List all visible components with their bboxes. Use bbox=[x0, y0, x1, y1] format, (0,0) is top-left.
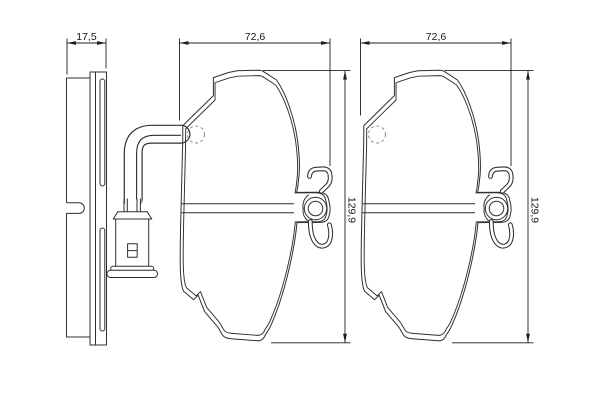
brake-pad-right bbox=[361, 70, 511, 341]
backplate-slot-lower bbox=[100, 228, 105, 331]
connector-top-flange bbox=[113, 212, 152, 219]
backplate-profile bbox=[90, 72, 107, 345]
friction-material-profile bbox=[67, 78, 91, 337]
dimension-label-left-pad-width: 72,6 bbox=[245, 31, 266, 43]
wear-sensor-connector bbox=[107, 212, 158, 278]
side-notch bbox=[67, 203, 85, 214]
dimension-label-left-pad-height: 129,9 bbox=[346, 197, 358, 223]
wear-sensor-wire bbox=[124, 134, 181, 212]
backplate-slot-upper bbox=[100, 79, 105, 186]
brake-pad-technical-drawing: 17,5 72,6 72,6 129,9 129,9 bbox=[0, 0, 600, 400]
connector-base bbox=[107, 270, 158, 277]
drawing-canvas: 17,5 72,6 72,6 129,9 129,9 bbox=[0, 0, 600, 400]
dimension-label-right-pad-height: 129,9 bbox=[529, 197, 541, 223]
side-view bbox=[67, 72, 107, 345]
dimension-label-thickness: 17,5 bbox=[76, 31, 97, 43]
brake-pad-left bbox=[180, 70, 330, 341]
dimension-label-right-pad-width: 72,6 bbox=[426, 31, 447, 43]
